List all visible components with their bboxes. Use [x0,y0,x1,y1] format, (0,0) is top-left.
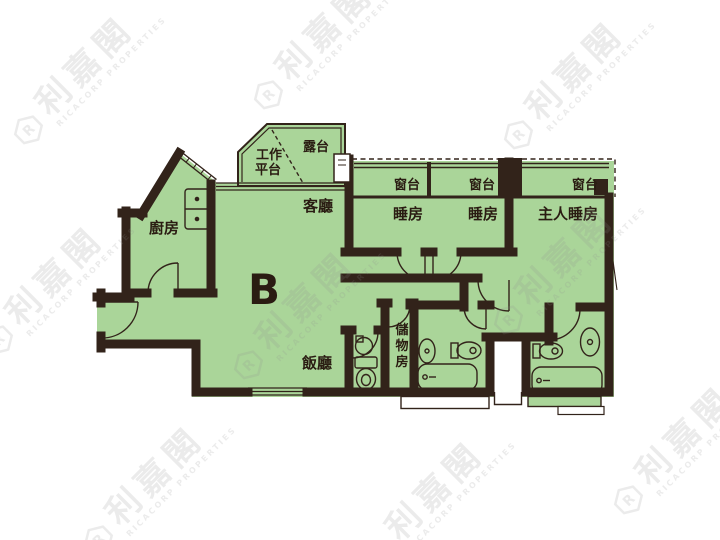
pipe-duct [334,154,350,182]
bedroom2-label: 睡房 [468,205,498,223]
kitchen-label: 廚房 [149,219,179,237]
floor-plan-drawing: B 廚房 客廳 飯廳 工作 平台 露台 窗台 窗台 窗台 睡房 睡房 主人睡房 … [0,0,720,540]
dining-room-label: 飯廳 [301,354,332,372]
unit-label: B [248,265,280,314]
platform-step [558,407,604,415]
bedroom1-label: 睡房 [393,205,423,223]
living-room-label: 客廳 [302,197,333,215]
bay-window-1-label: 窗台 [394,177,420,193]
balcony-label: 露台 [303,139,329,155]
platform-under-bathroom [401,397,489,409]
bay-window-3-label: 窗台 [572,177,598,193]
utility-platform-label-line1: 工作 [256,147,282,163]
light-well [495,342,522,405]
bay-window-2-label: 窗台 [469,177,495,193]
platform-under-master-bathroom [528,397,601,407]
master-bedroom-label: 主人睡房 [538,205,598,223]
storage-label-char2: 物 [395,338,408,354]
storage-label-char3: 房 [395,354,408,370]
floor-plan-page: B 廚房 客廳 飯廳 工作 平台 露台 窗台 窗台 窗台 睡房 睡房 主人睡房 … [0,0,720,540]
storage-label-char1: 儲 [394,322,408,338]
utility-platform-label-line2: 平台 [255,162,281,178]
